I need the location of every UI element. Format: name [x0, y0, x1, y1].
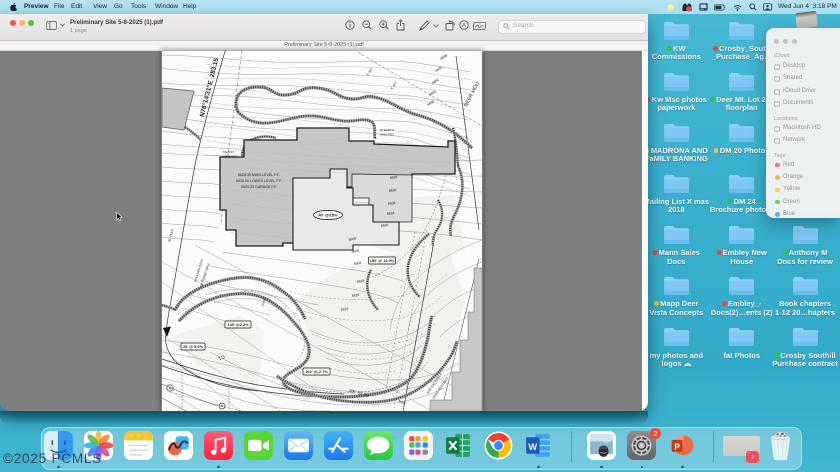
- svg-text:140' @2.2%: 140' @2.2%: [227, 322, 249, 327]
- svg-text:P: P: [674, 442, 680, 451]
- svg-text:@ EARTH: @ EARTH: [380, 128, 394, 132]
- svg-text:A: A: [462, 23, 466, 29]
- svg-text:8 EXIST: 8 EXIST: [223, 150, 234, 154]
- svg-text:40' @3.5%: 40' @3.5%: [319, 213, 339, 218]
- svg-text:6628.35 MAIN LEVEL F.F.: 6628.35 MAIN LEVEL F.F.: [238, 173, 280, 177]
- svg-text:BOULDER: BOULDER: [223, 155, 238, 159]
- svg-text:SHELTER: SHELTER: [380, 133, 394, 137]
- svg-text:150' @ 12.0%: 150' @ 12.0%: [370, 258, 395, 263]
- svg-text:20' @ 5.0%: 20' @ 5.0%: [183, 344, 204, 349]
- svg-text:6625.33 GARAGE F.F.: 6625.33 GARAGE F.F.: [241, 185, 277, 189]
- svg-text:6626.00 LOWER LEVEL F.F.: 6626.00 LOWER LEVEL F.F.: [236, 179, 282, 183]
- svg-text:W: W: [528, 442, 537, 452]
- svg-text:162' @-2.7%: 162' @-2.7%: [305, 369, 328, 374]
